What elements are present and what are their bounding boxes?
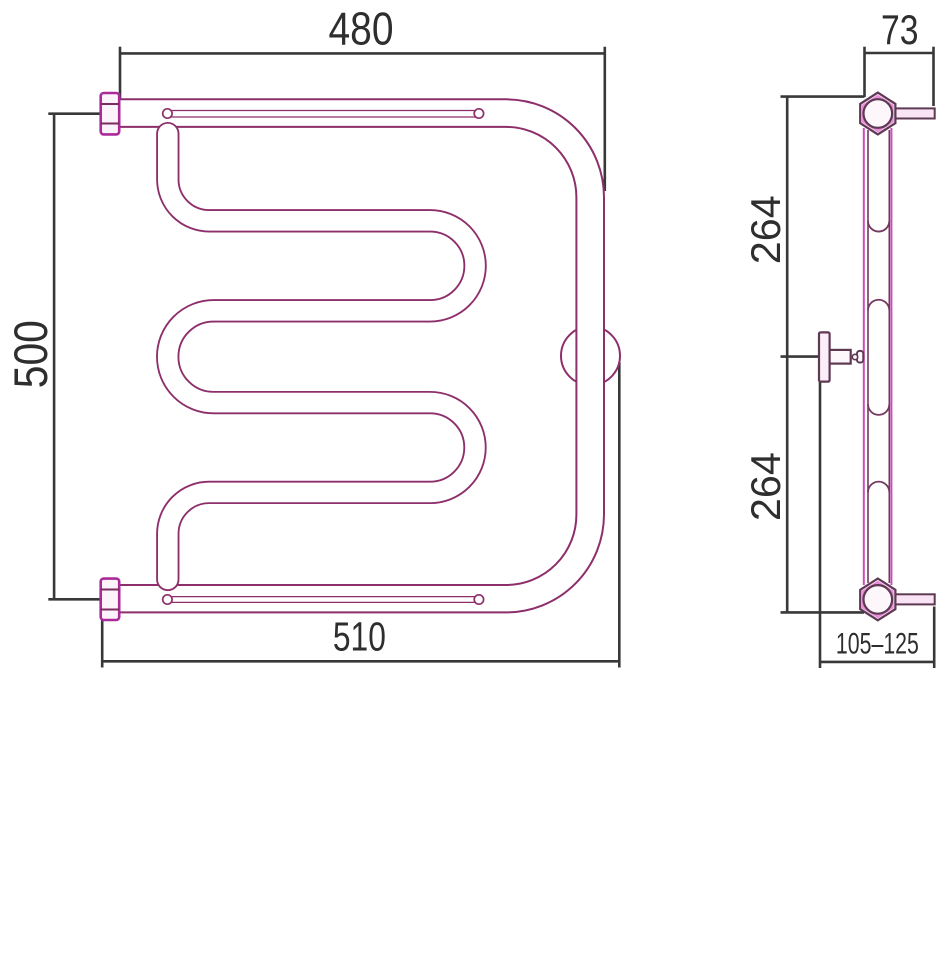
svg-text:264: 264 [742,195,789,264]
svg-text:73: 73 [881,6,919,53]
svg-text:480: 480 [329,3,394,55]
svg-text:105–125: 105–125 [836,627,919,660]
svg-text:264: 264 [742,452,789,521]
svg-text:500: 500 [4,320,57,388]
svg-text:510: 510 [333,614,386,660]
